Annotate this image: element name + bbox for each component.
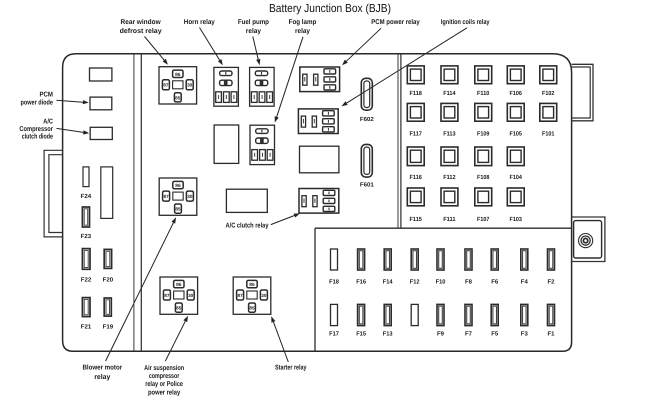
svg-text:F110: F110: [477, 90, 490, 97]
svg-text:clutch diode: clutch diode: [22, 133, 53, 141]
svg-text:PCM: PCM: [40, 91, 54, 98]
svg-text:F20: F20: [103, 276, 114, 283]
svg-text:Ignition coils relay: Ignition coils relay: [441, 19, 490, 26]
svg-text:F105: F105: [510, 131, 523, 138]
svg-text:Air suspension: Air suspension: [144, 364, 184, 372]
svg-text:Starter relay: Starter relay: [275, 364, 307, 372]
svg-text:F10: F10: [436, 279, 446, 286]
svg-text:F108: F108: [477, 174, 490, 181]
svg-text:F8: F8: [465, 279, 473, 286]
svg-text:85: 85: [176, 306, 182, 311]
svg-text:F602: F602: [360, 116, 374, 123]
svg-text:85: 85: [175, 207, 181, 212]
svg-text:F601: F601: [360, 181, 374, 188]
svg-text:86: 86: [176, 282, 182, 287]
svg-text:87: 87: [164, 194, 170, 199]
svg-text:F4: F4: [521, 279, 529, 286]
svg-text:F5: F5: [491, 331, 499, 338]
svg-text:F111: F111: [443, 216, 456, 223]
svg-text:power diode: power diode: [21, 98, 54, 106]
svg-text:F115: F115: [410, 216, 423, 223]
svg-text:F117: F117: [410, 131, 423, 138]
svg-text:power relay: power relay: [148, 388, 180, 396]
svg-text:F109: F109: [477, 131, 490, 138]
svg-text:compressor: compressor: [149, 373, 180, 380]
svg-text:F23: F23: [81, 233, 92, 240]
svg-text:F112: F112: [443, 174, 456, 181]
svg-text:Battery Junction Box (BJB): Battery Junction Box (BJB): [269, 2, 391, 15]
svg-text:F16: F16: [356, 279, 366, 286]
svg-text:30: 30: [188, 293, 194, 298]
svg-text:87: 87: [164, 293, 170, 298]
svg-text:F104: F104: [510, 174, 523, 181]
svg-text:F21: F21: [81, 324, 92, 331]
svg-text:A/C clutch relay: A/C clutch relay: [226, 222, 269, 230]
svg-text:F13: F13: [383, 331, 393, 338]
svg-text:85: 85: [249, 306, 255, 311]
svg-text:F102: F102: [542, 90, 555, 97]
svg-text:F15: F15: [356, 331, 366, 338]
svg-text:F6: F6: [491, 279, 499, 286]
svg-text:F113: F113: [443, 131, 456, 138]
svg-text:Blower motor: Blower motor: [82, 363, 122, 371]
svg-text:Horn relay: Horn relay: [184, 19, 215, 26]
svg-text:PCM power relay: PCM power relay: [371, 19, 420, 26]
svg-text:relay: relay: [94, 373, 110, 381]
svg-text:F101: F101: [542, 131, 555, 138]
svg-text:86: 86: [175, 183, 181, 188]
svg-text:F24: F24: [81, 193, 92, 200]
svg-text:Fog lamp: Fog lamp: [289, 19, 317, 26]
svg-text:relay: relay: [246, 28, 261, 35]
svg-text:F3: F3: [521, 331, 529, 338]
svg-text:relay or Police: relay or Police: [145, 380, 183, 388]
svg-text:defrost relay: defrost relay: [120, 28, 162, 35]
svg-text:F14: F14: [383, 279, 393, 286]
svg-text:F19: F19: [103, 324, 114, 331]
svg-text:F18: F18: [329, 279, 339, 286]
svg-text:F114: F114: [443, 90, 456, 97]
svg-text:F107: F107: [477, 216, 490, 223]
svg-text:F118: F118: [410, 90, 423, 97]
svg-text:F9: F9: [437, 331, 445, 338]
svg-text:86: 86: [175, 72, 181, 77]
svg-text:Compressor: Compressor: [19, 126, 53, 133]
svg-text:F106: F106: [510, 90, 523, 97]
svg-text:30: 30: [187, 83, 193, 88]
svg-text:87: 87: [163, 83, 169, 88]
svg-text:F17: F17: [329, 331, 339, 338]
svg-text:Fuel pump: Fuel pump: [238, 19, 269, 26]
svg-text:F7: F7: [465, 331, 473, 338]
svg-text:Rear window: Rear window: [121, 19, 162, 26]
svg-text:F1: F1: [548, 331, 556, 338]
svg-text:F103: F103: [510, 216, 523, 223]
svg-text:A/C: A/C: [43, 118, 53, 126]
svg-text:F22: F22: [81, 276, 92, 283]
svg-text:85: 85: [175, 95, 181, 100]
svg-text:30: 30: [187, 194, 193, 199]
svg-text:F116: F116: [410, 174, 423, 181]
svg-text:F2: F2: [548, 279, 556, 286]
svg-text:F12: F12: [410, 279, 420, 286]
svg-text:87: 87: [238, 293, 244, 298]
svg-text:30: 30: [261, 293, 267, 298]
svg-text:86: 86: [249, 282, 255, 287]
svg-text:relay: relay: [295, 28, 310, 35]
